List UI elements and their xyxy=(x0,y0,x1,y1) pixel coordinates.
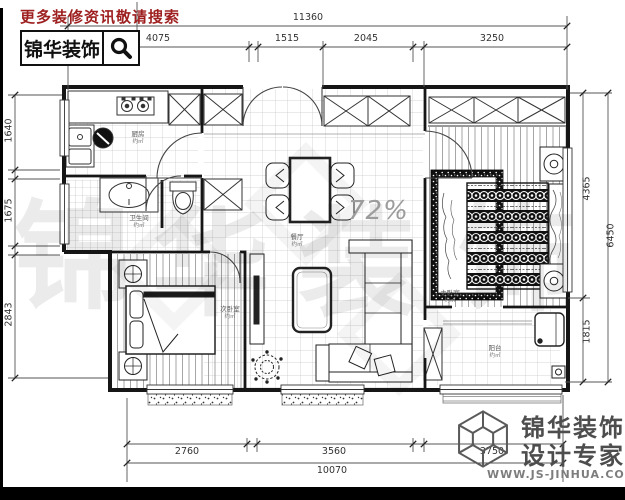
promo-text: 更多装修资讯敬请搜索 xyxy=(20,6,180,27)
floorplan-page: 锦 华 装 饰 更多装修资讯敬请搜索 锦华装饰 11360 4075 1515 … xyxy=(0,0,625,500)
wardrobe-x-box xyxy=(324,96,368,126)
dim-left: 1640 xyxy=(4,111,15,151)
dim-bottom-seg: 3560 xyxy=(309,446,359,457)
kitchen-stool xyxy=(93,128,113,148)
brand-block: 锦华装饰 设计专家 WWW.JS-JINHUA.COM xyxy=(448,404,623,488)
brand-name: 锦华装饰 xyxy=(22,32,102,64)
watermark-char: 锦 xyxy=(14,198,132,316)
dim-bottom-overall: 10070 xyxy=(307,465,357,476)
room-label-bedroom2: 次卧室约㎡ xyxy=(207,306,253,320)
wardrobe-x-box xyxy=(474,97,518,123)
dim-bottom-seg: 2760 xyxy=(162,446,212,457)
room-label-kitchen: 厨房约㎡ xyxy=(115,131,161,145)
dim-left: 2843 xyxy=(4,295,15,335)
watermark-char: 饰 xyxy=(458,200,576,318)
room-label-bath: 卫生间约㎡ xyxy=(116,215,162,229)
bottom-black-bar xyxy=(0,487,625,500)
brand-url: WWW.JS-JINHUA.COM xyxy=(487,468,625,481)
nightstand xyxy=(119,352,147,380)
dim-top-seg: 1515 xyxy=(262,33,312,44)
drain xyxy=(552,366,565,378)
dim-top-seg: 2045 xyxy=(341,33,391,44)
room-label-balcony: 阳台约㎡ xyxy=(472,345,518,359)
dim-top-overall: 11360 xyxy=(283,12,333,23)
dim-right-inner: 4365 xyxy=(582,169,593,209)
stove xyxy=(117,97,154,115)
kitchen-sink xyxy=(66,125,94,167)
brand-logo-box: 锦华装饰 xyxy=(20,30,140,66)
left-black-strip xyxy=(0,8,3,500)
wardrobe-x-box xyxy=(518,97,565,123)
wardrobe-x-box xyxy=(368,96,410,126)
image-loading-progress: 72% xyxy=(348,196,409,226)
window xyxy=(281,385,364,394)
dim-right-inner: 1815 xyxy=(582,312,593,352)
cube-logo-icon xyxy=(448,406,518,472)
dim-top-seg: 4075 xyxy=(133,33,183,44)
wardrobe-x-box xyxy=(429,97,474,123)
brand-line2: 设计专家 xyxy=(521,436,625,471)
dim-top-seg: 3250 xyxy=(467,33,517,44)
window xyxy=(60,100,69,156)
dim-left: 1675 xyxy=(4,191,15,231)
window xyxy=(147,385,233,394)
window xyxy=(440,385,562,394)
shaft-x-box xyxy=(204,94,242,125)
dim-right-outer: 6450 xyxy=(606,216,617,256)
room-label-master: 主卧室约㎡ xyxy=(427,290,473,304)
magnifier-icon xyxy=(102,32,138,64)
shaft-x-box xyxy=(169,94,200,125)
room-label-dining: 餐厅约㎡ xyxy=(274,234,320,248)
